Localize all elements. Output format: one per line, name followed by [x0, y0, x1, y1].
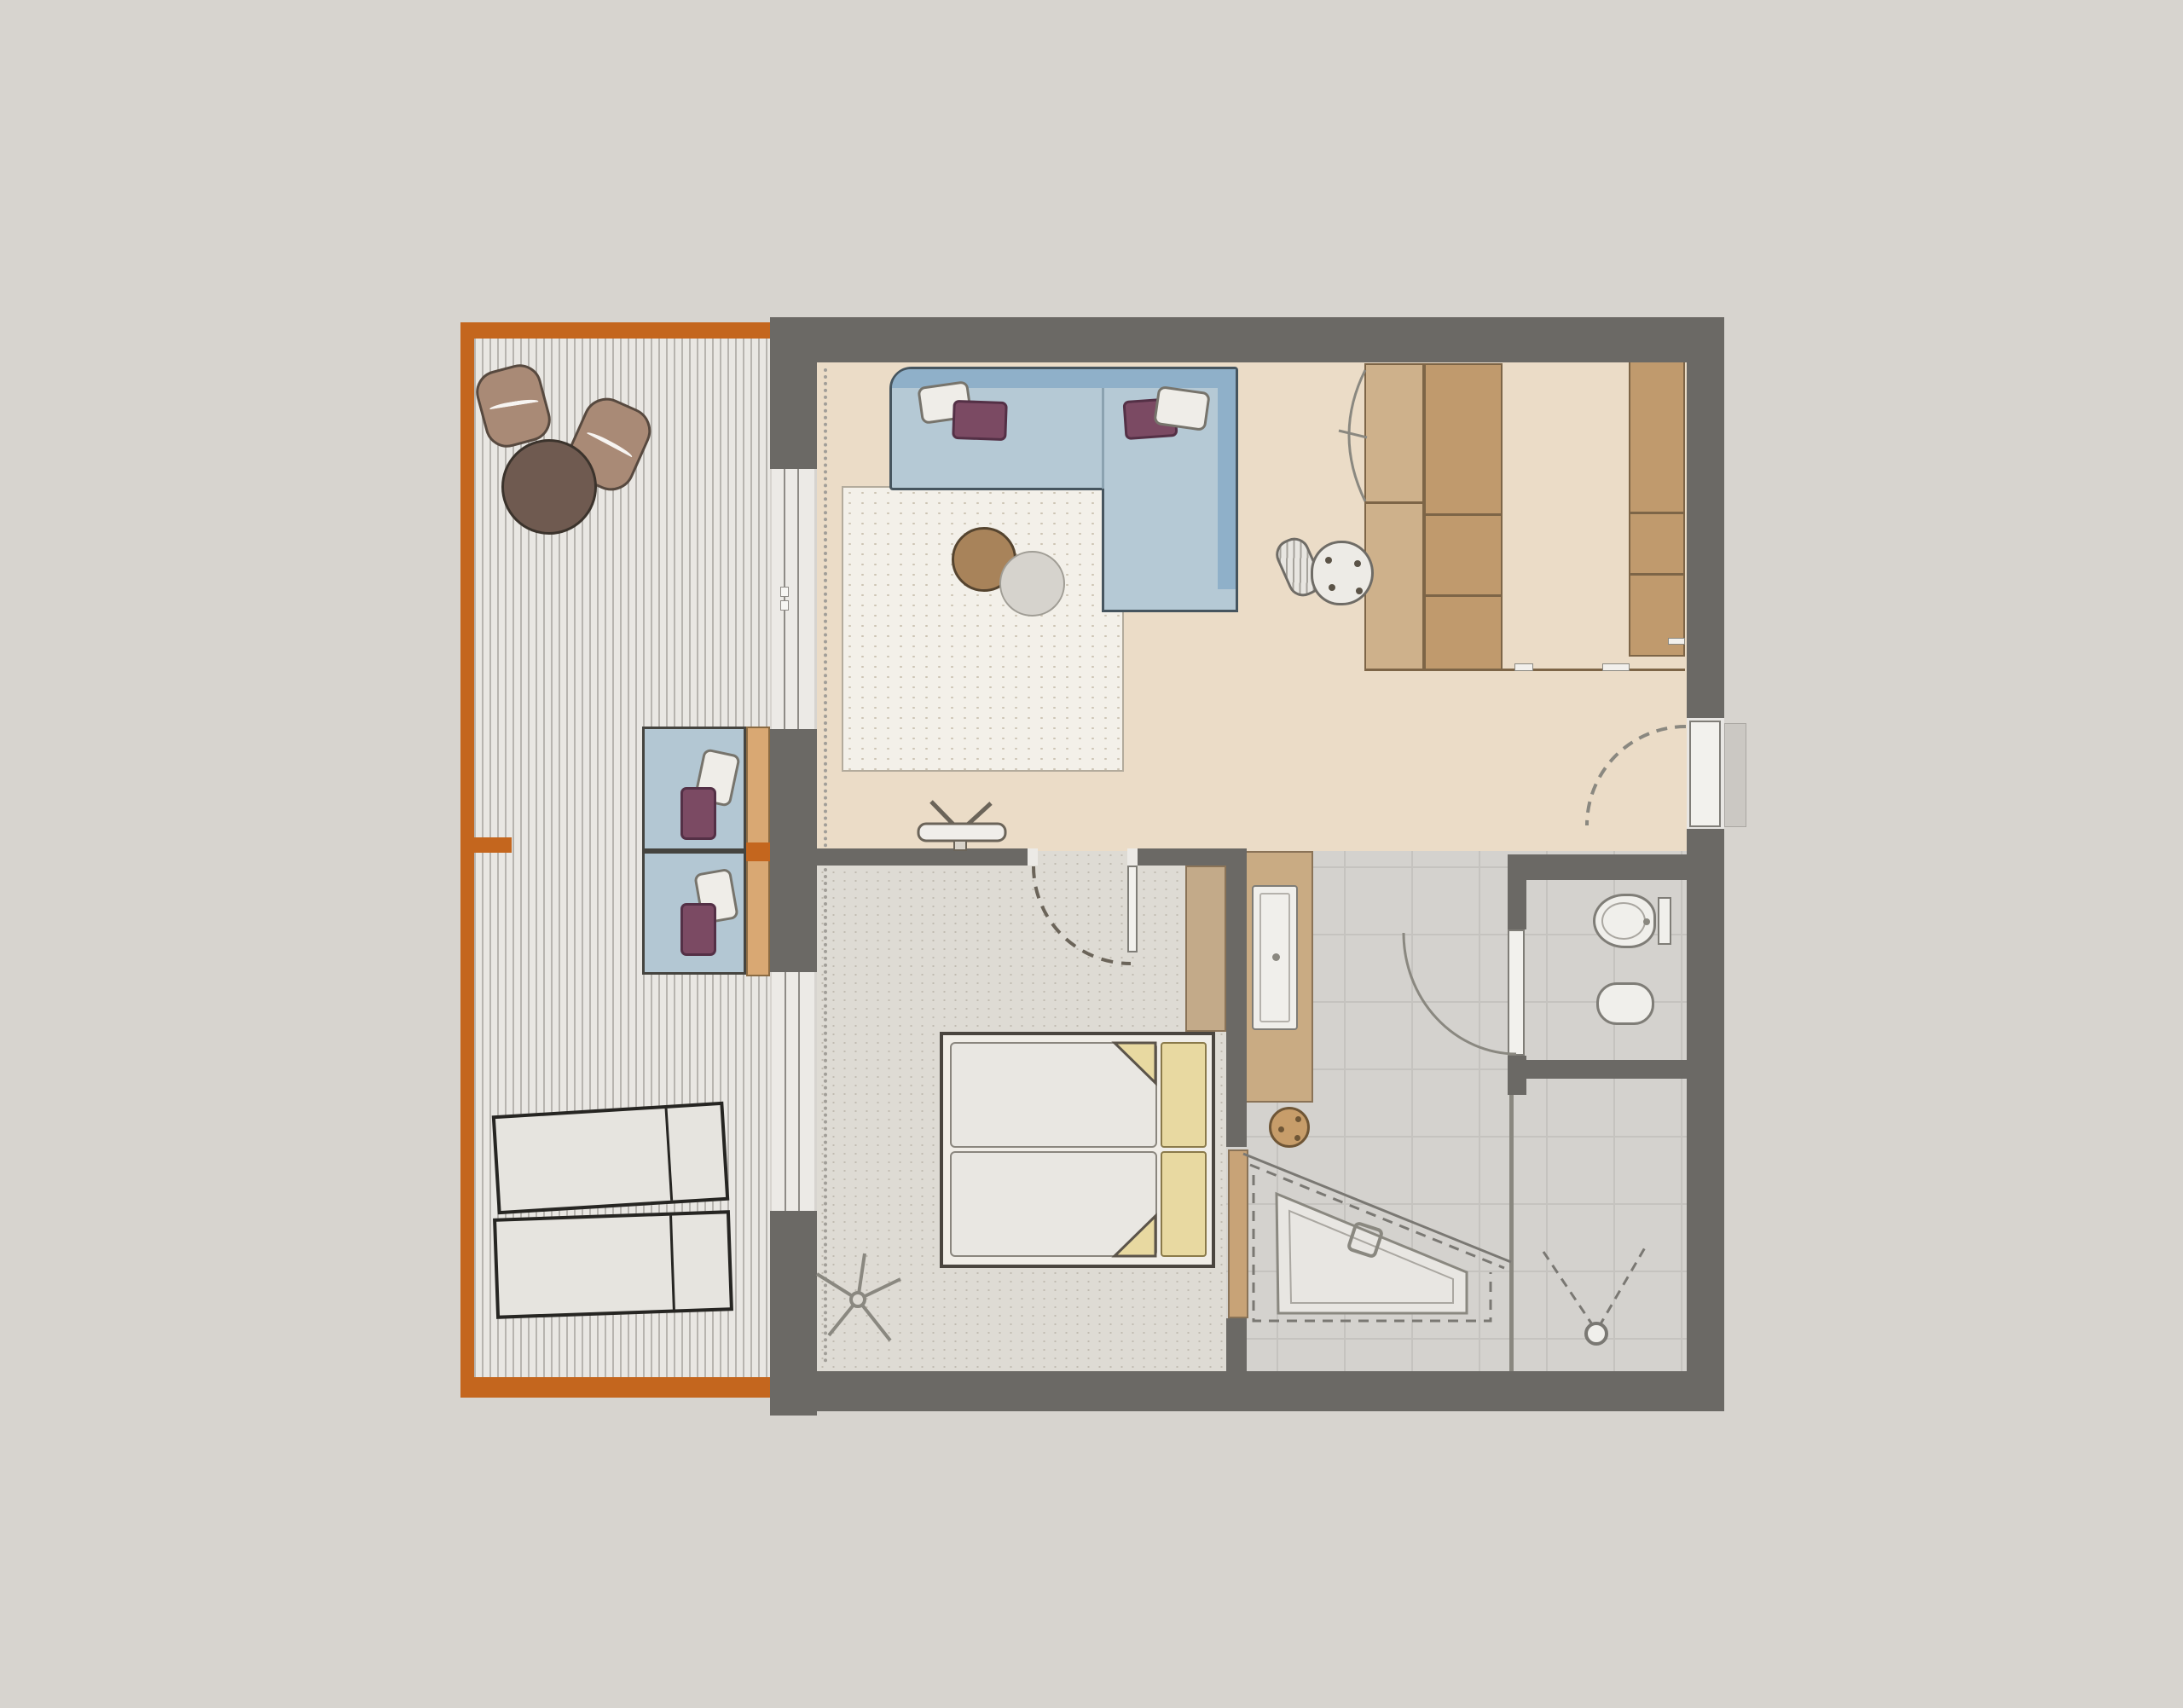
entrance-door-swing — [1587, 727, 1686, 825]
wc-door-swing — [1404, 933, 1516, 1054]
walk-in-shower-symbol — [1540, 1243, 1647, 1344]
floor-lamp-symbol — [817, 1253, 900, 1340]
curtain-arc — [1339, 370, 1367, 501]
bedroom-door-swing — [1034, 866, 1131, 964]
tv-symbol — [918, 802, 1005, 850]
shower — [1243, 1154, 1511, 1321]
symbol-overlay — [0, 0, 2183, 1708]
shower-tray — [1277, 1194, 1467, 1313]
floor-plan — [0, 0, 2183, 1708]
blanket-fold — [1115, 1043, 1155, 1256]
